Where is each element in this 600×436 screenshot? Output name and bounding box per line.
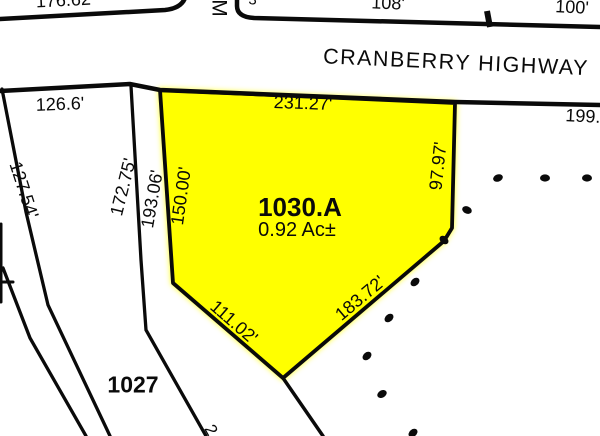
boundary-tip-continuation [283,378,323,436]
dim-label-97-97: 97.97' [427,141,450,191]
dim-label-100: 100' [555,0,589,17]
parcel-id-label: 1030.A [258,194,342,220]
dim-label-partial-top: 3' [248,0,259,8]
parcel-map-canvas[interactable]: 176.62' M 3' 108' 100' CRANBERRY HIGHWAY… [0,0,600,436]
dim-label-231-27: 231.27' [273,93,332,113]
lot-tick-mark [487,11,490,27]
dim-label-126-6: 126.6' [35,94,84,114]
neighbor-parcel-id-label: 1027 [107,374,158,397]
dim-label-108: 108' [371,0,405,13]
cross-street-letter: M [209,0,230,17]
road-edge-north-right [237,0,600,27]
parcel-area-label: 0.92 Ac± [258,220,336,240]
dim-label-199: 199. [565,106,600,126]
